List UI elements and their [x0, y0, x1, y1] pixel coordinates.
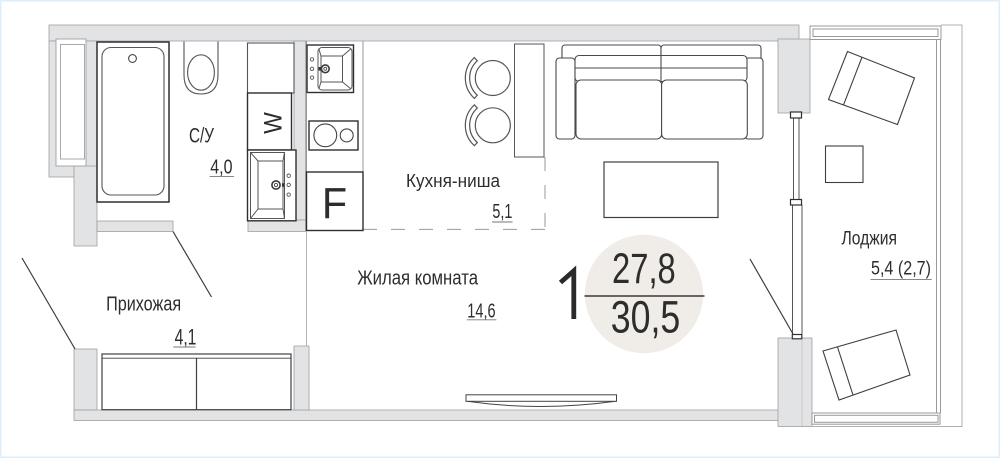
svg-text:30,5: 30,5: [611, 291, 681, 342]
svg-text:Жилая комната: Жилая комната: [357, 267, 479, 289]
svg-text:Лоджия: Лоджия: [842, 227, 898, 249]
svg-text:Прихожая: Прихожая: [106, 293, 181, 315]
svg-text:Кухня-ниша: Кухня-ниша: [406, 170, 501, 191]
svg-text:F: F: [322, 179, 347, 227]
svg-text:С/У: С/У: [189, 125, 214, 148]
svg-text:4,0: 4,0: [210, 156, 232, 178]
svg-text:27,8: 27,8: [612, 245, 676, 293]
svg-text:4,1: 4,1: [175, 325, 197, 350]
svg-text:W: W: [260, 112, 288, 134]
svg-text:5,4 (2,7): 5,4 (2,7): [871, 258, 931, 279]
svg-text:5,1: 5,1: [492, 200, 512, 223]
svg-text:14,6: 14,6: [467, 299, 495, 322]
